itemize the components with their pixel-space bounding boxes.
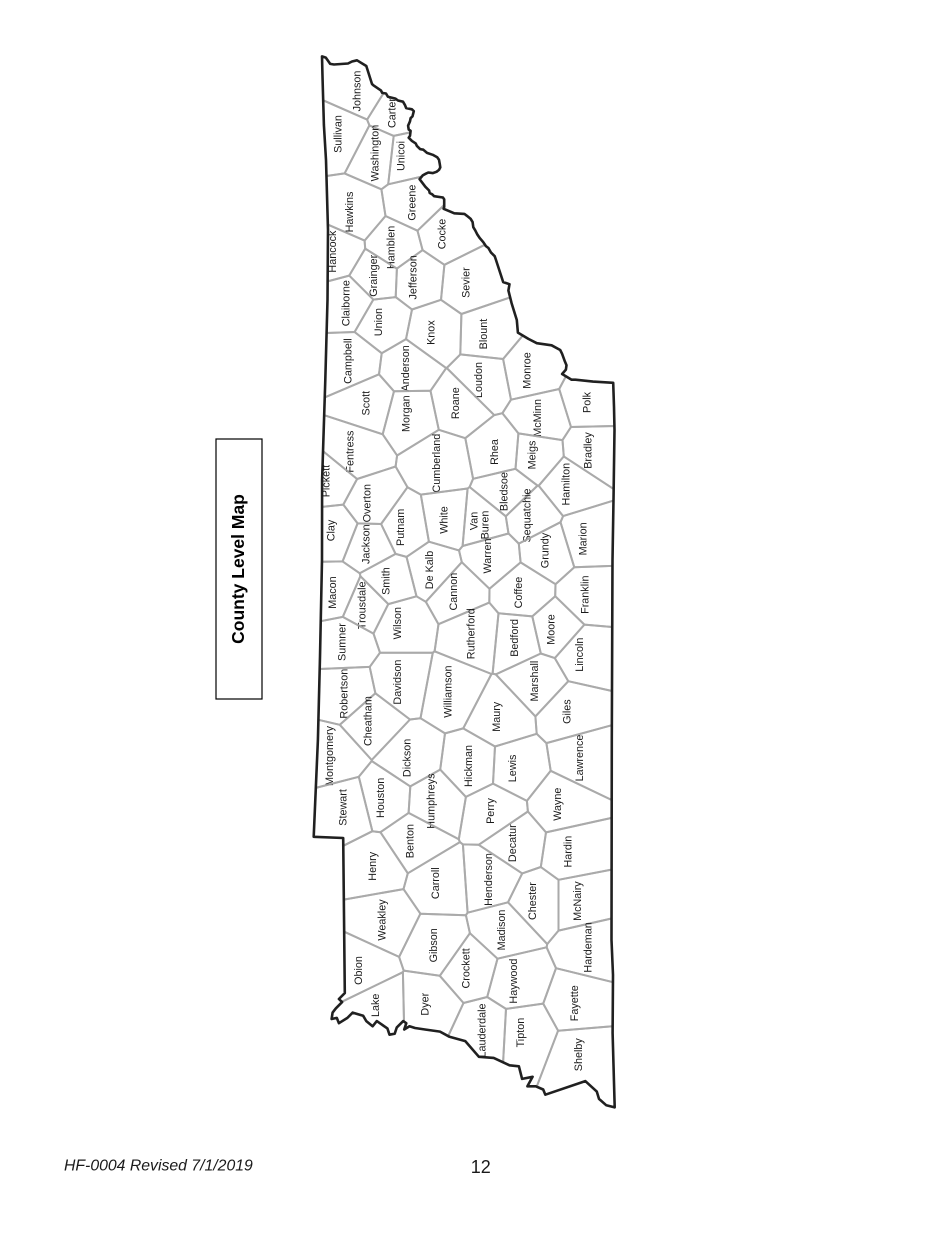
svg-text:Overton: Overton: [362, 484, 374, 522]
svg-text:Coffee: Coffee: [513, 577, 525, 609]
svg-text:Shelby: Shelby: [573, 1038, 585, 1072]
svg-text:Wilson: Wilson: [392, 607, 404, 639]
svg-text:Union: Union: [373, 308, 385, 336]
svg-text:Marion: Marion: [577, 522, 589, 555]
svg-text:Crockett: Crockett: [461, 948, 473, 988]
svg-text:Campbell: Campbell: [343, 338, 355, 384]
svg-text:Trousdale: Trousdale: [356, 581, 368, 629]
svg-text:Marshall: Marshall: [529, 661, 541, 702]
svg-text:Anderson: Anderson: [400, 345, 412, 391]
svg-text:Loudon: Loudon: [473, 362, 485, 398]
svg-text:Cheatham: Cheatham: [363, 696, 375, 746]
svg-text:County Level Map: County Level Map: [228, 494, 248, 644]
svg-text:Greene: Greene: [406, 185, 418, 221]
svg-text:Hickman: Hickman: [463, 745, 475, 787]
svg-text:Moore: Moore: [546, 614, 558, 645]
svg-text:Benton: Benton: [405, 824, 417, 858]
svg-text:Bedford: Bedford: [509, 619, 521, 657]
svg-text:Roane: Roane: [450, 387, 462, 419]
svg-text:Weakley: Weakley: [376, 899, 388, 941]
svg-text:Claiborne: Claiborne: [341, 280, 353, 326]
svg-text:12: 12: [471, 1157, 491, 1177]
svg-text:Carroll: Carroll: [430, 867, 442, 899]
svg-text:Jefferson: Jefferson: [407, 255, 419, 299]
svg-text:Gibson: Gibson: [428, 928, 440, 962]
svg-text:Houston: Houston: [375, 778, 387, 818]
svg-text:Hamilton: Hamilton: [561, 463, 573, 506]
svg-text:Sevier: Sevier: [461, 267, 473, 298]
svg-text:Carter: Carter: [387, 98, 399, 128]
svg-text:Buren: Buren: [479, 511, 491, 540]
svg-text:Cannon: Cannon: [448, 573, 460, 611]
svg-text:Lauderdale: Lauderdale: [476, 1003, 488, 1057]
svg-text:Decatur: Decatur: [507, 824, 519, 862]
svg-text:Stewart: Stewart: [337, 789, 349, 826]
svg-text:Giles: Giles: [562, 699, 574, 724]
svg-text:Clay: Clay: [326, 519, 338, 541]
svg-text:Humphreys: Humphreys: [426, 773, 438, 829]
svg-text:Monroe: Monroe: [522, 352, 534, 389]
svg-text:Morgan: Morgan: [401, 395, 413, 432]
svg-text:HF-0004 Revised 7/1/2019: HF-0004 Revised 7/1/2019: [64, 1158, 253, 1175]
svg-text:Wayne: Wayne: [552, 788, 564, 821]
svg-text:Unicoi: Unicoi: [396, 141, 408, 171]
svg-text:Rutherford: Rutherford: [466, 608, 478, 659]
svg-text:Lewis: Lewis: [507, 754, 519, 782]
svg-text:Polk: Polk: [582, 391, 594, 413]
svg-text:Obion: Obion: [353, 956, 365, 985]
svg-text:Sumner: Sumner: [336, 623, 348, 661]
svg-text:Johnson: Johnson: [352, 71, 364, 112]
svg-text:Lawrence: Lawrence: [574, 735, 586, 782]
svg-text:Robertson: Robertson: [338, 669, 350, 719]
svg-text:Hardin: Hardin: [563, 836, 575, 868]
svg-text:Washington: Washington: [369, 125, 381, 182]
svg-text:Knox: Knox: [426, 320, 438, 345]
svg-text:Hawkins: Hawkins: [344, 191, 356, 232]
svg-text:Fentress: Fentress: [345, 430, 357, 473]
svg-text:Fayette: Fayette: [569, 985, 581, 1021]
svg-text:Chester: Chester: [527, 882, 539, 920]
svg-text:Tipton: Tipton: [515, 1018, 527, 1048]
svg-text:White: White: [438, 506, 450, 534]
svg-text:Davidson: Davidson: [392, 660, 404, 705]
svg-text:Sullivan: Sullivan: [333, 115, 345, 153]
svg-text:McMinn: McMinn: [532, 399, 544, 437]
svg-text:McNairy: McNairy: [572, 881, 584, 921]
svg-text:Cocke: Cocke: [437, 219, 449, 250]
svg-text:Lake: Lake: [370, 994, 382, 1017]
svg-text:Smith: Smith: [381, 567, 393, 595]
svg-text:Montgomery: Montgomery: [324, 725, 336, 786]
svg-text:Haywood: Haywood: [508, 959, 520, 1004]
svg-text:Sequatchie: Sequatchie: [522, 488, 534, 542]
svg-text:Maury: Maury: [491, 701, 503, 732]
svg-text:Williamson: Williamson: [443, 665, 455, 717]
svg-text:Dickson: Dickson: [402, 739, 414, 777]
svg-text:Henry: Henry: [367, 851, 379, 880]
svg-text:Grainger: Grainger: [368, 254, 380, 296]
svg-text:Bledsoe: Bledsoe: [498, 472, 510, 511]
svg-text:Bradley: Bradley: [583, 432, 595, 469]
svg-text:De Kalb: De Kalb: [424, 551, 436, 589]
svg-text:Putnam: Putnam: [395, 509, 407, 546]
svg-text:Grundy: Grundy: [539, 532, 551, 568]
svg-text:Blount: Blount: [478, 319, 490, 350]
svg-text:Rhea: Rhea: [489, 439, 501, 465]
svg-text:Lincoln: Lincoln: [574, 638, 586, 672]
svg-text:Perry: Perry: [485, 798, 497, 824]
svg-text:Meigs: Meigs: [527, 440, 539, 469]
svg-text:Henderson: Henderson: [483, 853, 495, 906]
svg-text:Scott: Scott: [361, 391, 373, 416]
svg-text:Dyer: Dyer: [419, 992, 431, 1015]
svg-text:Hardeman: Hardeman: [583, 922, 595, 972]
svg-text:Madison: Madison: [496, 910, 508, 951]
svg-text:Macon: Macon: [327, 576, 339, 608]
svg-text:Jackson: Jackson: [361, 524, 373, 564]
svg-text:Cumberland: Cumberland: [431, 434, 443, 493]
svg-text:Warren: Warren: [482, 539, 494, 574]
svg-text:Franklin: Franklin: [579, 575, 591, 613]
